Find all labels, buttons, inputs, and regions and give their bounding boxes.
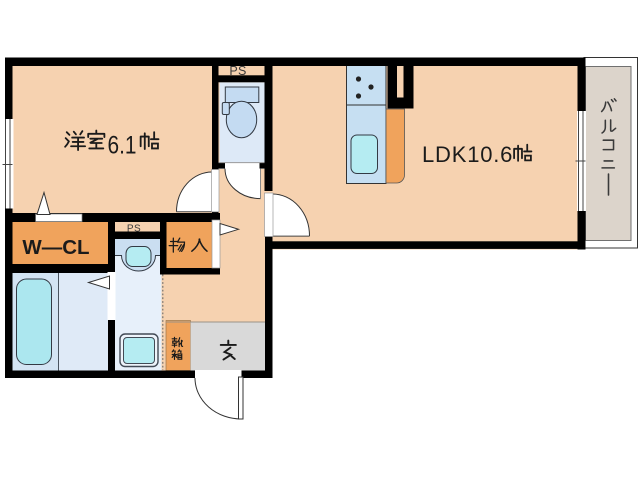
svg-text:PS: PS <box>127 224 141 235</box>
svg-text:W—CL: W—CL <box>22 236 89 259</box>
svg-text:PS: PS <box>229 64 246 78</box>
svg-text:LDK10.6: LDK10.6 <box>422 142 513 167</box>
svg-text:6.1: 6.1 <box>108 132 137 160</box>
